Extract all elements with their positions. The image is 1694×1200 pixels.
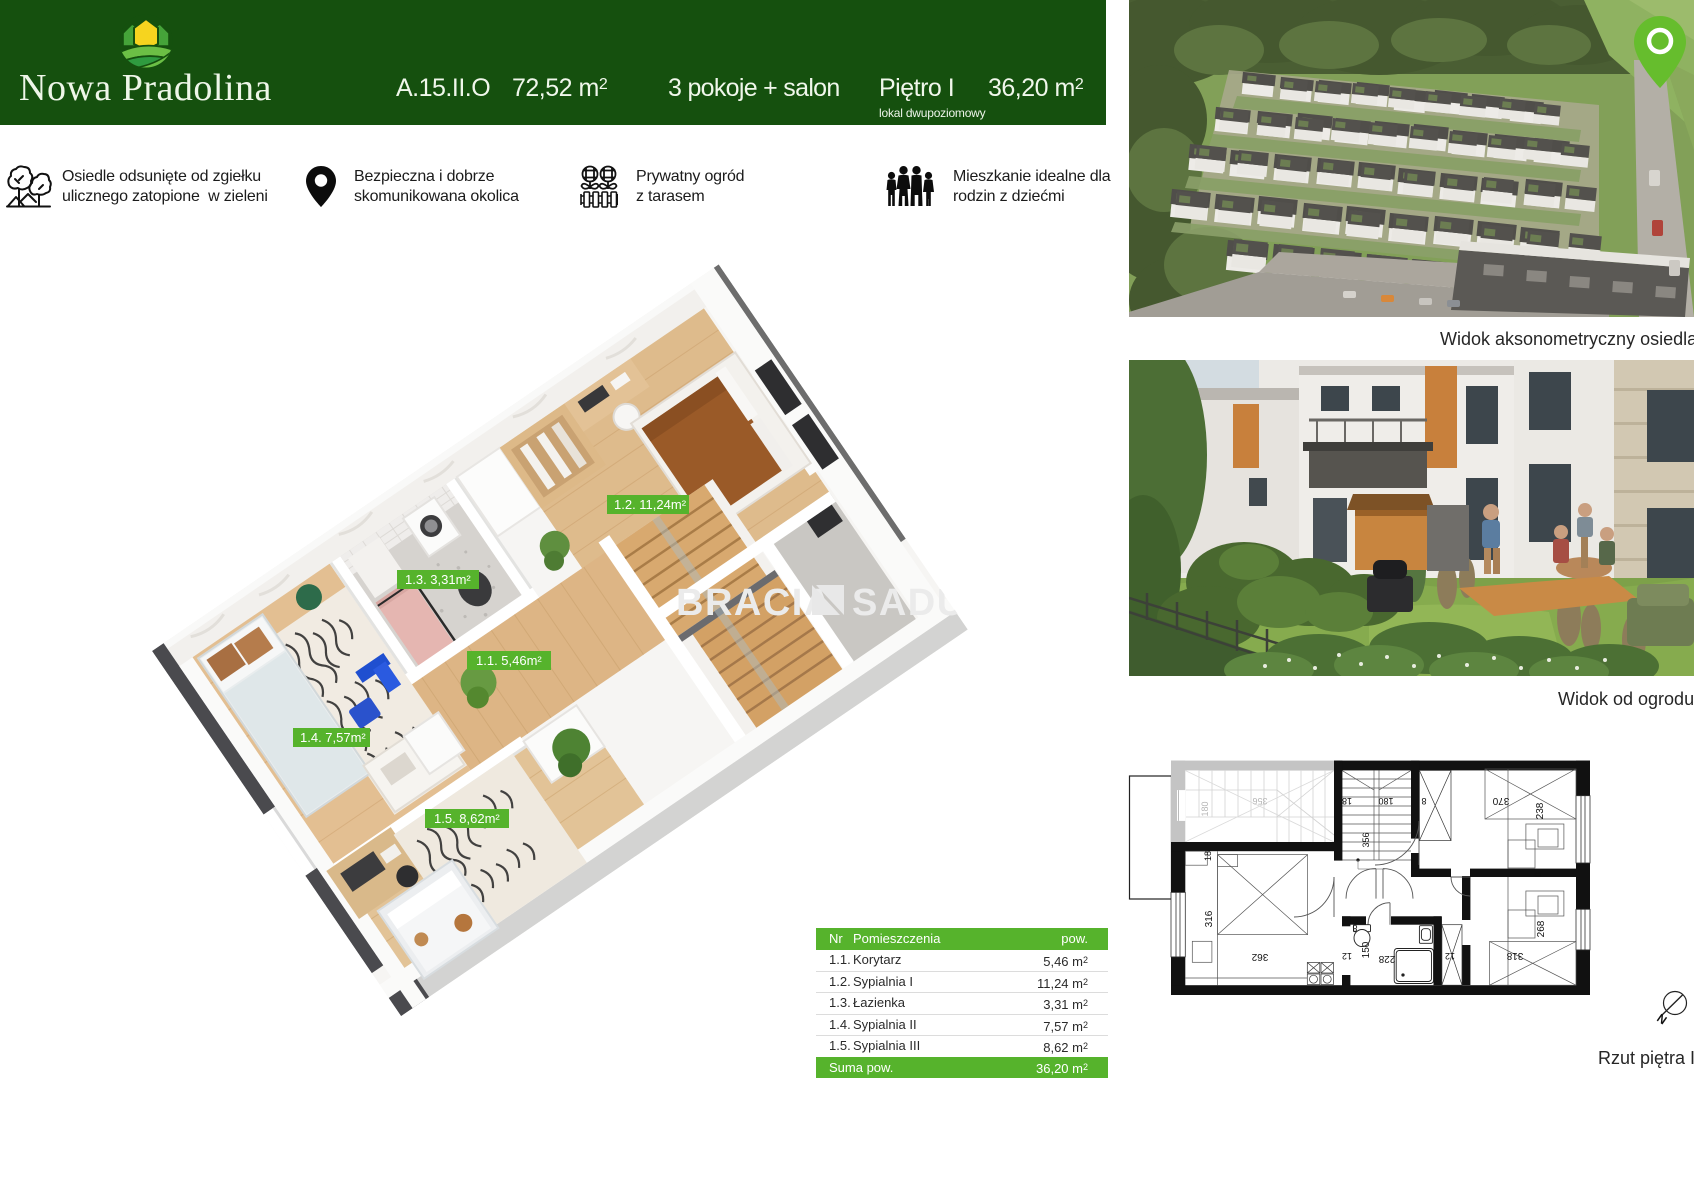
svg-text:12: 12 [1342, 951, 1352, 961]
svg-text:18: 18 [1203, 851, 1213, 861]
svg-text:1.5. 8,62m²: 1.5. 8,62m² [434, 811, 500, 826]
svg-text:8: 8 [1533, 872, 1543, 877]
svg-text:180: 180 [1200, 801, 1210, 816]
svg-text:SADURSCY: SADURSCY [852, 582, 1020, 624]
svg-text:1.4. 7,57m²: 1.4. 7,57m² [300, 730, 366, 745]
svg-text:150: 150 [1361, 941, 1372, 958]
svg-text:318: 318 [1506, 950, 1523, 961]
svg-text:8: 8 [1421, 796, 1426, 806]
svg-text:356: 356 [1361, 832, 1371, 847]
svg-text:8: 8 [1352, 923, 1357, 933]
svg-text:238: 238 [1535, 802, 1546, 819]
svg-text:1.3. 3,31m²: 1.3. 3,31m² [405, 572, 471, 587]
svg-text:1.1. 5,46m²: 1.1. 5,46m² [476, 653, 542, 668]
svg-text:268: 268 [1536, 920, 1547, 937]
svg-text:180: 180 [1378, 796, 1393, 806]
svg-text:BRACIA: BRACIA [676, 582, 833, 624]
svg-text:356: 356 [1252, 796, 1267, 806]
svg-text:370: 370 [1492, 795, 1509, 806]
svg-text:228: 228 [1378, 953, 1395, 964]
svg-text:18: 18 [1342, 796, 1352, 806]
svg-text:1.2. 11,24m²: 1.2. 11,24m² [614, 497, 687, 512]
svg-text:316: 316 [1204, 910, 1215, 927]
svg-text:362: 362 [1251, 951, 1268, 962]
svg-text:12: 12 [1445, 951, 1455, 961]
